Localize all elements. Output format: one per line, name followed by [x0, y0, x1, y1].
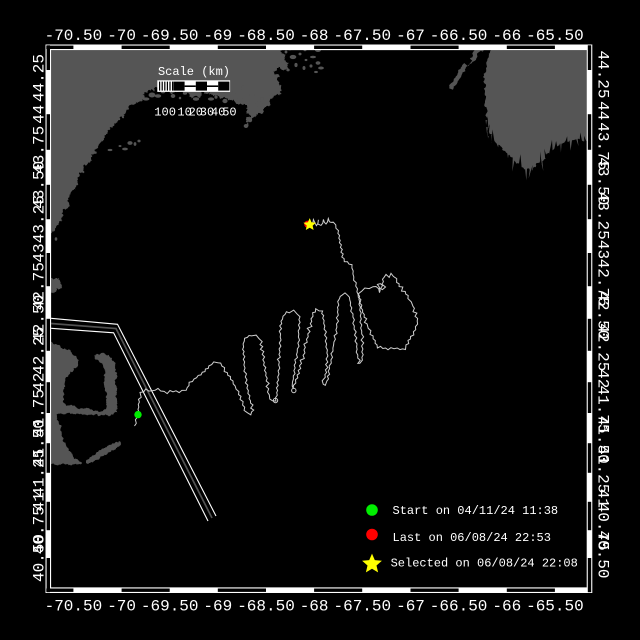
svg-text:-68.50: -68.50 [237, 598, 295, 616]
svg-text:-70: -70 [107, 27, 136, 45]
svg-text:-66.50: -66.50 [430, 27, 488, 45]
svg-text:10: 10 [154, 106, 168, 120]
svg-text:-69: -69 [203, 27, 232, 45]
svg-text:-69: -69 [203, 598, 232, 616]
svg-text:-69.50: -69.50 [141, 598, 199, 616]
svg-text:-70.50: -70.50 [45, 27, 103, 45]
svg-text:Last on 06/08/24 22:53: Last on 06/08/24 22:53 [393, 531, 551, 545]
svg-text:44: 44 [593, 101, 611, 120]
svg-text:-68.50: -68.50 [237, 27, 295, 45]
svg-text:-65.50: -65.50 [526, 598, 584, 616]
svg-text:-67: -67 [396, 598, 425, 616]
svg-text:-65.50: -65.50 [526, 27, 584, 45]
svg-text:44: 44 [31, 105, 49, 124]
svg-text:Start on 04/11/24 11:38: Start on 04/11/24 11:38 [393, 504, 559, 518]
svg-text:42: 42 [31, 373, 49, 392]
svg-text:40.50: 40.50 [593, 530, 611, 578]
svg-text:43: 43 [31, 243, 49, 262]
svg-text:41.25: 41.25 [593, 445, 611, 493]
svg-text:43: 43 [593, 240, 611, 259]
svg-text:42.25: 42.25 [593, 323, 611, 371]
svg-text:-68: -68 [300, 598, 329, 616]
svg-text:41.25: 41.25 [31, 449, 49, 497]
svg-text:-67: -67 [396, 27, 425, 45]
svg-text:-67.50: -67.50 [333, 598, 391, 616]
svg-text:-69.50: -69.50 [141, 27, 199, 45]
svg-text:-66: -66 [492, 27, 521, 45]
svg-text:40.50: 40.50 [31, 534, 49, 582]
svg-text:Selected on 06/08/24 22:08: Selected on 06/08/24 22:08 [391, 556, 578, 570]
svg-text:-66: -66 [492, 598, 521, 616]
svg-text:-70.50: -70.50 [45, 598, 103, 616]
svg-text:50: 50 [222, 106, 236, 120]
svg-text:44.25: 44.25 [31, 54, 49, 102]
svg-text:43.25: 43.25 [31, 195, 49, 243]
svg-text:-67.50: -67.50 [333, 27, 391, 45]
svg-text:-66.50: -66.50 [430, 598, 488, 616]
svg-text:44.25: 44.25 [593, 50, 611, 98]
svg-text:43.25: 43.25 [593, 192, 611, 240]
svg-text:-68: -68 [300, 27, 329, 45]
svg-text:Scale (km): Scale (km) [158, 65, 230, 79]
svg-text:42.25: 42.25 [31, 327, 49, 375]
svg-text:0: 0 [169, 106, 176, 120]
svg-text:-70: -70 [107, 598, 136, 616]
